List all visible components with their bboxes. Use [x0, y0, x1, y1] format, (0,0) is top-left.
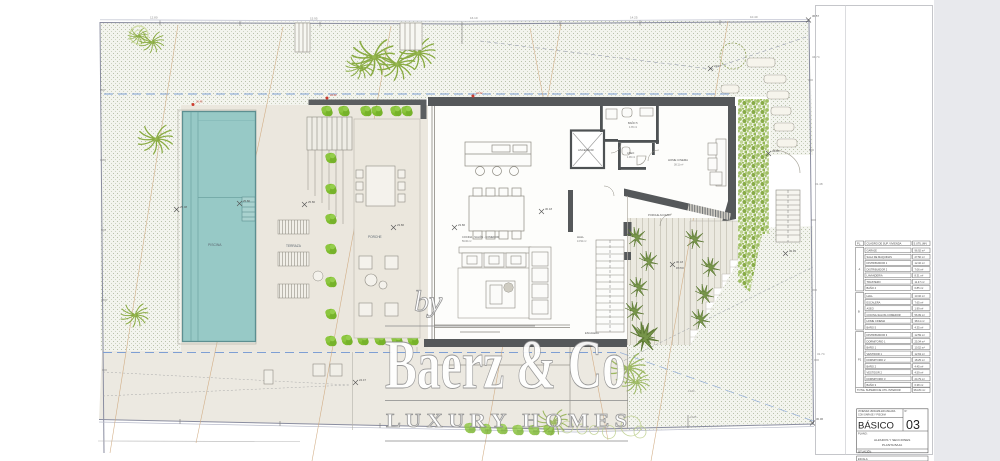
- svg-text:23.86: 23.86: [458, 223, 465, 227]
- svg-text:36.57: 36.57: [812, 14, 819, 18]
- svg-text:10.40: 10.40: [750, 15, 758, 19]
- svg-text:LAVANDERIA: LAVANDERIA: [867, 274, 883, 278]
- svg-text:25.80: 25.80: [243, 199, 250, 203]
- svg-text:PATIO: PATIO: [676, 266, 685, 270]
- svg-text:DORMITORIO 3: DORMITORIO 3: [867, 377, 887, 381]
- svg-text:27.50 m²: 27.50 m²: [915, 255, 925, 259]
- svg-text:25.08: 25.08: [180, 205, 187, 209]
- svg-text:30.18: 30.18: [545, 207, 552, 211]
- svg-text:13.60: 13.60: [688, 389, 695, 393]
- svg-text:CON GARAJE Y PISCINA: CON GARAJE Y PISCINA: [858, 414, 886, 417]
- svg-text:24.77: 24.77: [714, 64, 721, 68]
- svg-text:ASEO: ASEO: [867, 307, 874, 311]
- svg-text:DISTRIBUIDOR 1: DISTRIBUIDOR 1: [867, 261, 888, 265]
- svg-text:CUADRO DE SUP. VIVIENDA: CUADRO DE SUP. VIVIENDA: [867, 242, 902, 246]
- svg-text:12.32 m²: 12.32 m²: [915, 261, 925, 265]
- svg-text:COCINA-SALON-COMEDOR: COCINA-SALON-COMEDOR: [867, 313, 901, 317]
- svg-text:7.06 m²: 7.06 m²: [915, 267, 924, 271]
- svg-text:PLANTA BAJA: PLANTA BAJA: [882, 443, 903, 447]
- svg-text:15.95: 15.95: [310, 17, 318, 21]
- svg-text:TERRAZA: TERRAZA: [286, 244, 302, 248]
- svg-text:4.45 m²: 4.45 m²: [915, 364, 924, 368]
- svg-text:HOME CINEMA: HOME CINEMA: [867, 319, 886, 323]
- svg-text:24.05: 24.05: [690, 415, 697, 419]
- svg-text:ASCENSOR: ASCENSOR: [578, 148, 594, 152]
- svg-text:VESTIDOR 1: VESTIDOR 1: [867, 352, 883, 356]
- svg-text:S.UTIL (M²): S.UTIL (M²): [914, 242, 928, 246]
- svg-text:DORMITORIO 2: DORMITORIO 2: [867, 358, 887, 362]
- svg-text:BÁSICO: BÁSICO: [858, 421, 894, 432]
- svg-text:PL.: PL.: [857, 242, 861, 246]
- svg-text:31.48: 31.48: [815, 182, 823, 186]
- svg-text:12.80: 12.80: [150, 16, 158, 20]
- svg-text:DISTRIBUIDOR 3: DISTRIBUIDOR 3: [867, 333, 888, 337]
- svg-text:12.59 m²: 12.59 m²: [915, 333, 925, 337]
- svg-text:HALL: HALL: [867, 294, 874, 298]
- svg-text:56.09 m²: 56.09 m²: [915, 313, 925, 317]
- svg-text:361.84 m²: 361.84 m²: [914, 388, 926, 392]
- svg-text:03: 03: [906, 418, 920, 432]
- svg-text:4.35 m²: 4.35 m²: [629, 126, 637, 129]
- svg-text:24.62: 24.62: [476, 91, 483, 95]
- svg-text:23.86: 23.86: [397, 223, 404, 227]
- svg-text:1.99 m²: 1.99 m²: [915, 307, 924, 311]
- svg-text:ASEO: ASEO: [627, 151, 634, 155]
- svg-text:14.25: 14.25: [630, 16, 638, 20]
- svg-text:31.74: 31.74: [817, 352, 825, 356]
- svg-text:26.43: 26.43: [196, 100, 203, 104]
- svg-text:P1: P1: [858, 358, 862, 362]
- svg-text:VESTIDOR 2: VESTIDOR 2: [867, 371, 883, 375]
- svg-text:13.32 m²: 13.32 m²: [915, 294, 925, 298]
- svg-text:B: B: [858, 309, 860, 313]
- svg-text:38.11 m²: 38.11 m²: [674, 164, 683, 167]
- svg-text:6.38 m²: 6.38 m²: [915, 383, 924, 387]
- svg-text:Nº: Nº: [905, 409, 908, 413]
- svg-text:25.80: 25.80: [308, 200, 315, 204]
- svg-text:25.34 m²: 25.34 m²: [915, 339, 925, 343]
- svg-text:HOME CINEMA: HOME CINEMA: [668, 158, 688, 162]
- svg-text:SITUACIÓN:: SITUACIÓN:: [858, 451, 872, 454]
- svg-text:24.43: 24.43: [330, 93, 337, 97]
- svg-text:ESCALA:: ESCALA:: [858, 458, 868, 461]
- svg-text:11.47 m²: 11.47 m²: [915, 280, 925, 284]
- svg-text:18.25 m²: 18.25 m²: [915, 358, 925, 362]
- svg-text:DISTRIBUIDOR 2: DISTRIBUIDOR 2: [867, 267, 888, 271]
- svg-text:SALA DE MAQUINAS: SALA DE MAQUINAS: [867, 255, 893, 259]
- svg-text:PISCINA: PISCINA: [208, 243, 222, 247]
- svg-text:34.00: 34.00: [772, 149, 779, 153]
- svg-text:4.35 m²: 4.35 m²: [915, 325, 924, 329]
- svg-text:30.18: 30.18: [676, 260, 683, 264]
- svg-text:L U X U R Y H O M E S: L U X U R Y H O M E S: [386, 410, 627, 432]
- svg-text:10.52 m²: 10.52 m²: [915, 346, 925, 350]
- svg-text:TRASTERO: TRASTERO: [867, 280, 881, 284]
- svg-text:6.85 m²: 6.85 m²: [915, 286, 924, 290]
- svg-text:38.11 m²: 38.11 m²: [915, 319, 925, 323]
- svg-text:8.31 m²: 8.31 m²: [915, 274, 924, 278]
- svg-text:by: by: [414, 285, 443, 318]
- svg-text:34.74: 34.74: [812, 55, 820, 59]
- svg-text:96.92 m²: 96.92 m²: [915, 249, 925, 253]
- svg-text:PORCHE: PORCHE: [368, 235, 382, 239]
- svg-text:1.99 m²: 1.99 m²: [627, 156, 635, 159]
- svg-text:12.63 m²: 12.63 m²: [915, 352, 925, 356]
- svg-text:ESCALERA: ESCALERA: [867, 300, 881, 304]
- svg-text:DORMITORIO 1: DORMITORIO 1: [867, 339, 887, 343]
- svg-text:30.06: 30.06: [816, 417, 823, 421]
- svg-text:Baerz & Co: Baerz & Co: [385, 327, 626, 404]
- svg-text:24.79 m²: 24.79 m²: [915, 377, 925, 381]
- svg-text:PLANO:: PLANO:: [858, 432, 868, 436]
- svg-text:TOTAL SUPERFICIE UTIL INTERIOR: TOTAL SUPERFICIE UTIL INTERIOR: [857, 388, 901, 392]
- svg-text:HALL: HALL: [577, 235, 584, 239]
- svg-text:4.59 m²: 4.59 m²: [915, 371, 924, 375]
- svg-text:24.47: 24.47: [359, 378, 366, 382]
- svg-text:13.52 m²: 13.52 m²: [577, 240, 587, 243]
- svg-text:ALZADOS Y SECCIONES: ALZADOS Y SECCIONES: [874, 438, 910, 442]
- svg-text:56.00 m²: 56.00 m²: [462, 240, 472, 243]
- svg-text:PORCHE ACCESO: PORCHE ACCESO: [648, 213, 671, 217]
- svg-text:GARAJE: GARAJE: [867, 249, 878, 253]
- svg-text:30.95: 30.95: [789, 249, 796, 253]
- svg-text:7.65 m²: 7.65 m²: [915, 300, 924, 304]
- svg-text:16.10: 16.10: [470, 16, 478, 20]
